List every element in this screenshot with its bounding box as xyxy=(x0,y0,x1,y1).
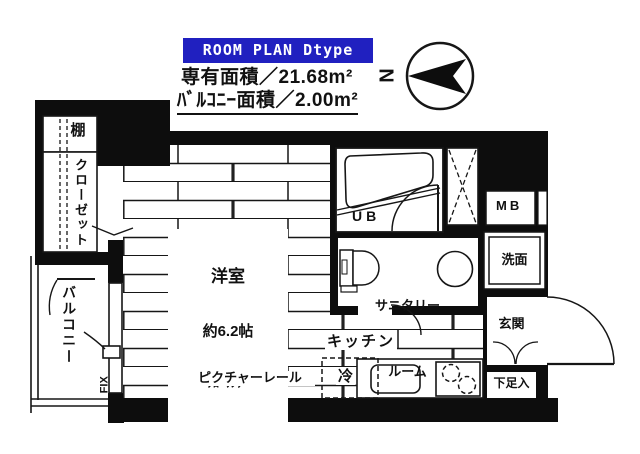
compass-north-label: N xyxy=(377,68,400,82)
fix-window-marker xyxy=(103,346,120,358)
meter-box-side xyxy=(538,191,547,225)
balcony-area-text: ﾊﾞﾙｺﾆｰ面積／2.00m² xyxy=(177,90,358,115)
room-name: 洋室 xyxy=(168,267,288,287)
exclusive-area-text: 専有面積／21.68m² xyxy=(181,67,353,89)
sanitary-line2: ルーム xyxy=(350,361,465,383)
unit-bath-label: UB xyxy=(352,208,380,224)
fridge-label: 冷 xyxy=(336,368,355,385)
picture-rail-label: ピクチャーレール xyxy=(185,371,315,386)
balcony-label: バルコニー xyxy=(61,285,77,365)
entrance-label: 玄関 xyxy=(487,317,536,332)
fix-leader-line xyxy=(84,332,105,349)
closet-label: クローゼット xyxy=(72,158,87,248)
kitchen-label: キッチン xyxy=(325,333,397,350)
compass xyxy=(407,43,473,109)
sanitary-line1: サニタリー xyxy=(350,295,465,317)
meter-box-label: MB xyxy=(496,199,522,214)
fix-label: FIX xyxy=(99,359,112,393)
washbasin-label: 洗面 xyxy=(489,253,540,268)
western-room-label: 洋室 約6.2帖 ﾌﾛｰﾘﾝｸﾞ xyxy=(168,229,288,429)
floorplan-page: ROOM PLAN Dtype 専有面積／21.68m² ﾊﾞﾙｺﾆｰ面積／2.… xyxy=(0,0,640,454)
room-plan-badge: ROOM PLAN Dtype xyxy=(183,38,373,63)
shoe-box-label: 下足入 xyxy=(485,377,538,391)
pipe-space-box xyxy=(447,148,478,225)
room-size: 約6.2帖 xyxy=(168,323,288,340)
shelf-label: 棚 xyxy=(63,122,93,139)
